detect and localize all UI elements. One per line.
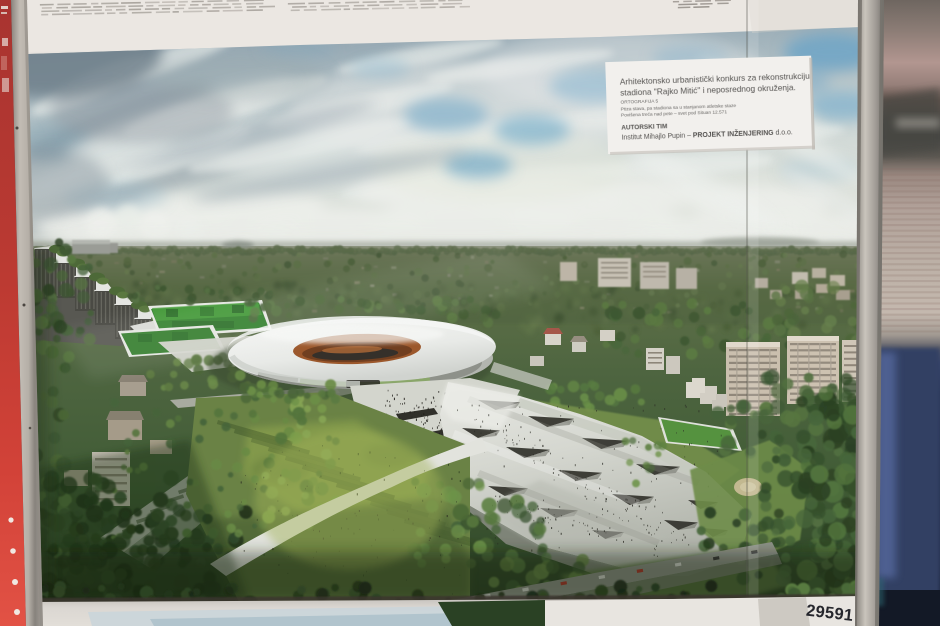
svg-text:AUTORSKI TIM: AUTORSKI TIM: [621, 123, 667, 131]
svg-text:ORTOGRAFIJA 5: ORTOGRAFIJA 5: [620, 98, 658, 105]
